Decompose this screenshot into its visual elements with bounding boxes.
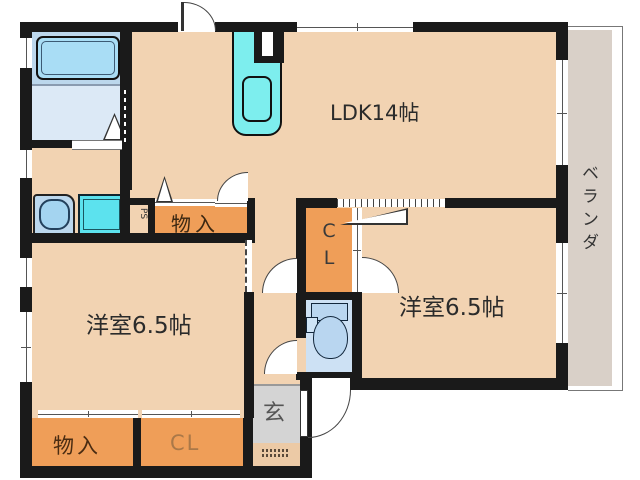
center-closet-line2: L: [306, 245, 352, 272]
bathtub-icon: [36, 36, 120, 80]
wall: [350, 378, 568, 390]
window: [20, 312, 32, 382]
washing-machine-icon: [78, 194, 125, 235]
ldk-label: LDK14帖: [330, 97, 419, 127]
bathroom-door-opening: [72, 140, 122, 150]
outside-area: [312, 390, 568, 470]
doorway-dashed: [245, 240, 252, 292]
service-door-arc: [184, 2, 216, 31]
bathroom-divider-line: [32, 84, 122, 86]
entrance-stamp: [262, 449, 288, 452]
window-ldk: [556, 60, 568, 165]
wall: [244, 292, 254, 418]
bedroom-closet-sliding-door: [142, 410, 240, 418]
wall: [133, 418, 141, 466]
dashed-wall-line: [124, 90, 126, 142]
wall: [556, 165, 568, 243]
entrance-door-opening: [312, 378, 350, 390]
center-closet-line1: C: [306, 218, 352, 245]
wall: [296, 198, 337, 208]
bedroom-left-label: 洋室6.5帖: [86, 306, 192, 340]
center-closet-label: C L: [306, 218, 352, 272]
wall: [32, 140, 72, 148]
wall: [413, 22, 568, 32]
wall: [352, 300, 362, 380]
floor-plan: ベランダ 物入 PS C L LDK14帖 洋室6.5帖 洋室6.5: [0, 0, 640, 480]
wall: [20, 68, 32, 150]
bedroom-storage-label: 物入: [53, 430, 101, 460]
window: [20, 150, 32, 178]
washbasin-icon: [39, 199, 70, 230]
wall: [20, 287, 32, 312]
wall: [20, 466, 312, 478]
window-bedroom2: [556, 243, 568, 343]
sliding-door-hatch: [337, 199, 445, 207]
bedroom-closet-label: CL: [170, 431, 200, 455]
wall: [215, 22, 297, 32]
entrance-door-leaf: [300, 390, 308, 437]
service-door-leaf: [181, 2, 184, 31]
kitchen-sink-icon: [242, 76, 272, 122]
wall: [296, 292, 362, 300]
toilet-bowl-icon: [313, 316, 348, 359]
wall: [556, 22, 568, 60]
wall: [20, 22, 178, 32]
kitchen-duct-notch: [262, 28, 273, 56]
pipe-space-label: PS: [134, 208, 148, 219]
wall: [20, 178, 32, 258]
wall: [20, 382, 32, 478]
wall: [296, 198, 306, 338]
wall: [120, 32, 132, 190]
window: [20, 38, 32, 68]
wall: [445, 198, 556, 208]
wall: [20, 233, 255, 243]
window: [20, 258, 32, 287]
bedroom-right-label: 洋室6.5帖: [399, 288, 505, 322]
entrance-label: 玄: [263, 395, 285, 427]
veranda-label: ベランダ: [576, 164, 601, 256]
entrance-stamp2: [262, 454, 288, 457]
bedroom-storage-sliding-door: [38, 410, 138, 418]
window-top: [297, 22, 413, 32]
wall: [243, 418, 253, 466]
